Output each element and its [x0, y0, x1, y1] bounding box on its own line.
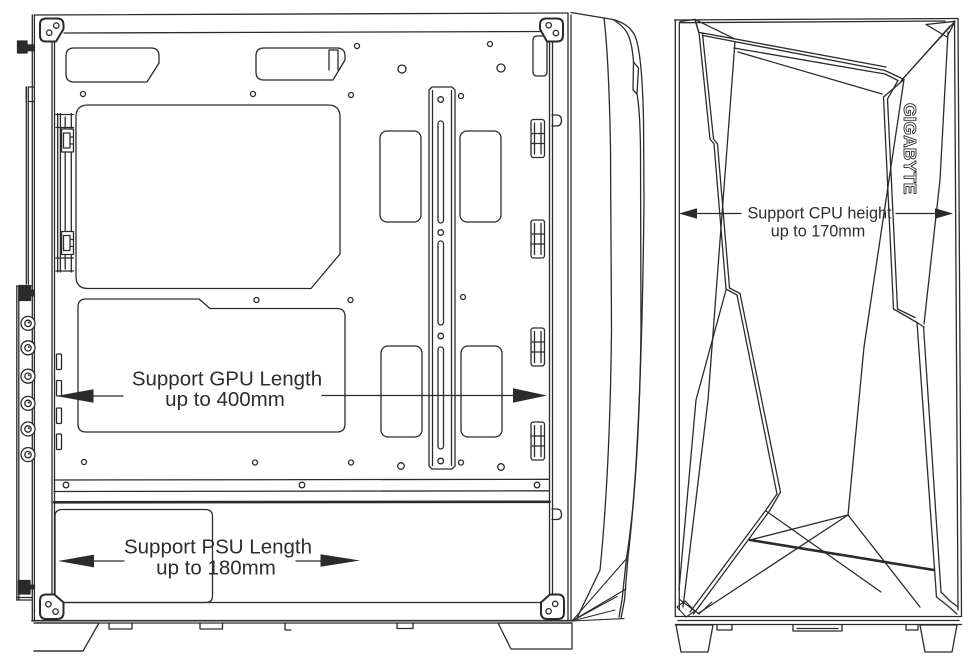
- svg-text:GIGABYTE: GIGABYTE: [900, 103, 920, 194]
- svg-text:up to 400mm: up to 400mm: [165, 388, 285, 411]
- svg-text:up to 170mm: up to 170mm: [771, 223, 865, 241]
- svg-text:Support PSU Length: Support PSU Length: [124, 536, 312, 559]
- svg-text:Support CPU height: Support CPU height: [748, 205, 892, 223]
- svg-text:up to 180mm: up to 180mm: [156, 557, 276, 580]
